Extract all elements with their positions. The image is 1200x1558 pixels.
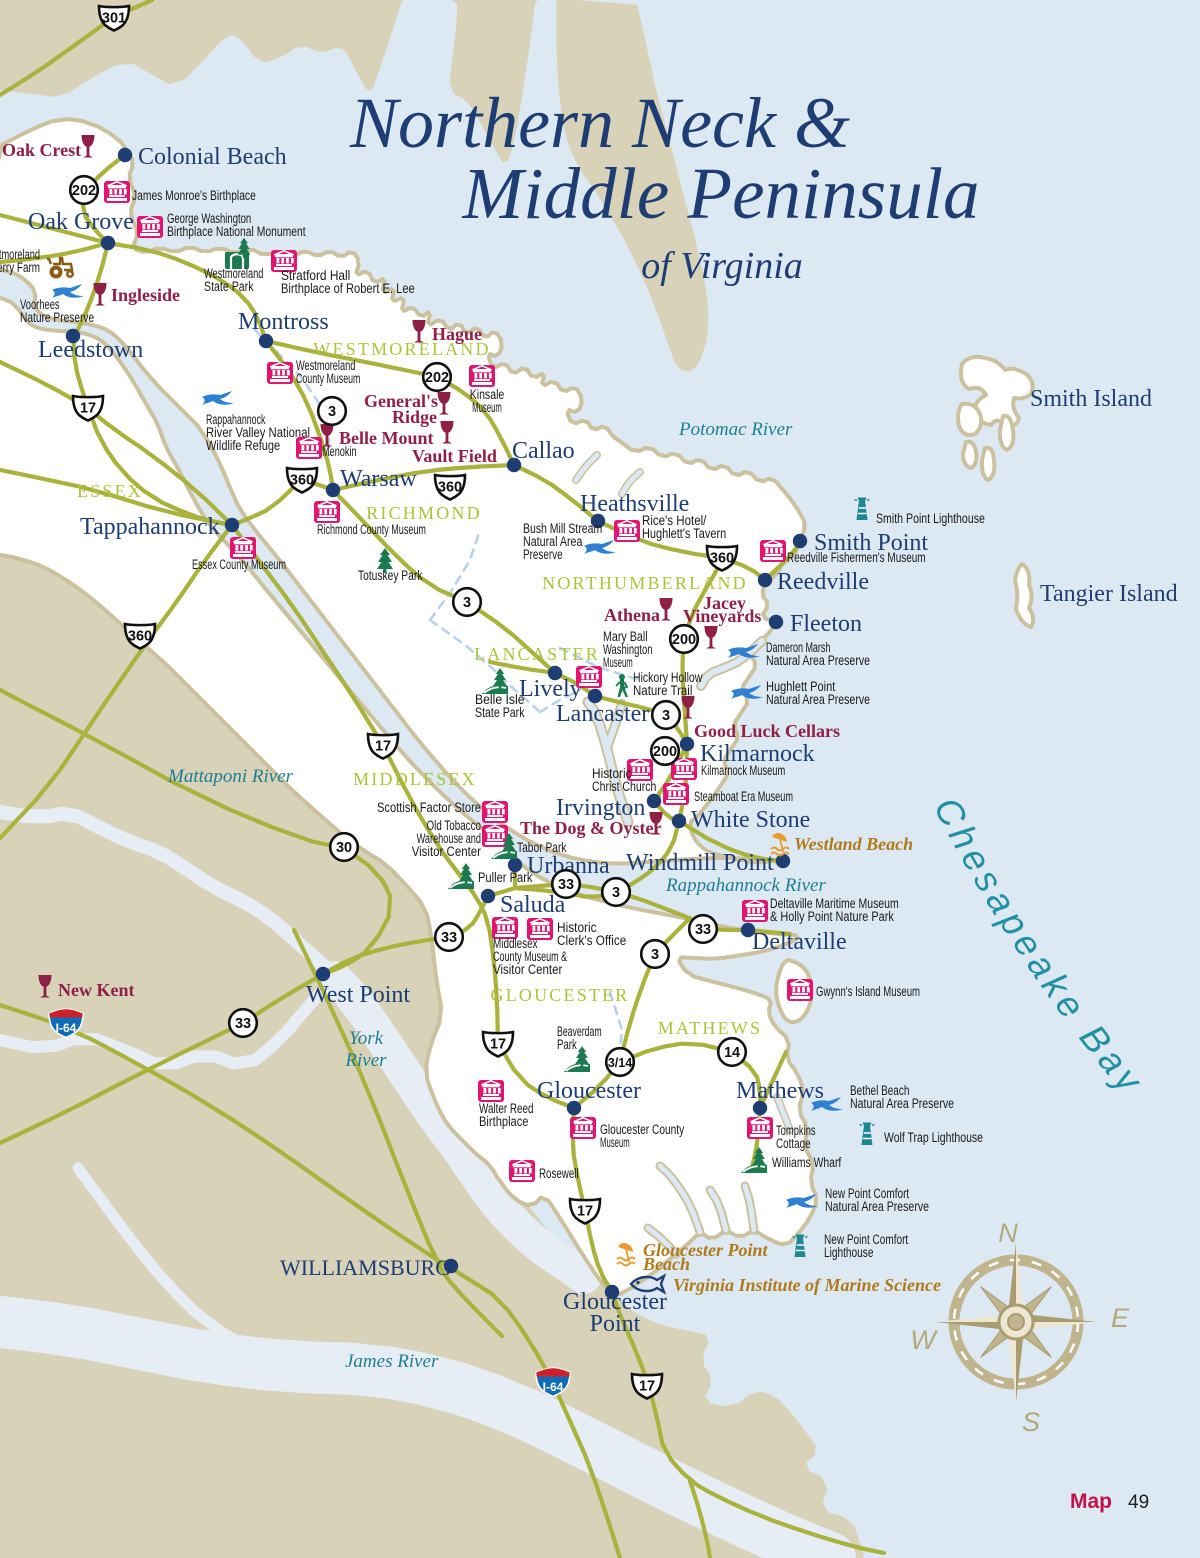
svg-text:Park: Park bbox=[557, 1037, 577, 1052]
svg-text:Tabor Park: Tabor Park bbox=[517, 840, 567, 855]
svg-text:Rosewell: Rosewell bbox=[539, 1166, 579, 1181]
svg-text:Birthplace: Birthplace bbox=[479, 1114, 529, 1129]
svg-text:Lively: Lively bbox=[519, 676, 582, 702]
svg-text:Lancaster: Lancaster bbox=[556, 701, 649, 727]
svg-text:ESSEX: ESSEX bbox=[77, 481, 143, 501]
svg-text:West Point: West Point bbox=[306, 982, 410, 1008]
svg-text:Kilmarnock Museum: Kilmarnock Museum bbox=[701, 763, 785, 778]
svg-text:Visitor Center: Visitor Center bbox=[493, 962, 563, 977]
svg-text:Potomac River: Potomac River bbox=[678, 419, 793, 440]
svg-text:RICHMOND: RICHMOND bbox=[366, 503, 482, 523]
svg-text:Natural Area Preserve: Natural Area Preserve bbox=[825, 1199, 929, 1214]
svg-text:E: E bbox=[1111, 1303, 1130, 1333]
svg-text:NORTHUMBERLAND: NORTHUMBERLAND bbox=[542, 573, 748, 593]
svg-text:Map: Map bbox=[1070, 1490, 1112, 1513]
svg-text:The Dog & Oyster: The Dog & Oyster bbox=[520, 818, 661, 838]
svg-text:New Kent: New Kent bbox=[58, 980, 134, 1000]
svg-text:Reedville Fishermen's Museum: Reedville Fishermen's Museum bbox=[787, 550, 926, 565]
svg-text:3/14: 3/14 bbox=[608, 1056, 632, 1070]
svg-text:Totuskey Park: Totuskey Park bbox=[358, 568, 423, 583]
svg-text:Montross: Montross bbox=[238, 309, 329, 335]
svg-text:Good Luck Cellars: Good Luck Cellars bbox=[694, 721, 840, 741]
svg-text:Museum: Museum bbox=[600, 1135, 630, 1150]
svg-text:& Holly Point Nature Park: & Holly Point Nature Park bbox=[770, 909, 894, 924]
svg-text:of Virginia: of Virginia bbox=[641, 245, 803, 287]
svg-text:Leedstown: Leedstown bbox=[38, 337, 143, 363]
svg-text:Natural Area Preserve: Natural Area Preserve bbox=[766, 653, 870, 668]
svg-text:N: N bbox=[998, 1218, 1018, 1248]
svg-text:Hughlett's Tavern: Hughlett's Tavern bbox=[642, 526, 726, 541]
svg-text:Fleeton: Fleeton bbox=[790, 611, 862, 637]
svg-text:Middle Peninsula: Middle Peninsula bbox=[462, 153, 980, 234]
svg-text:49: 49 bbox=[1128, 1492, 1149, 1513]
svg-text:GLOUCESTER: GLOUCESTER bbox=[491, 985, 630, 1005]
svg-text:360: 360 bbox=[710, 551, 734, 567]
svg-text:Ridge: Ridge bbox=[392, 407, 437, 427]
svg-text:Birthplace of Robert E. Lee: Birthplace of Robert E. Lee bbox=[281, 281, 415, 296]
svg-text:Oak Grove: Oak Grove bbox=[28, 209, 134, 235]
svg-text:Essex County Museum: Essex County Museum bbox=[192, 557, 286, 572]
svg-text:MATHEWS: MATHEWS bbox=[658, 1018, 762, 1038]
svg-text:Westland Beach: Westland Beach bbox=[794, 834, 913, 854]
svg-text:33: 33 bbox=[441, 930, 457, 946]
svg-text:3: 3 bbox=[328, 404, 336, 420]
svg-text:33: 33 bbox=[235, 1016, 251, 1032]
svg-text:Northern Neck &: Northern Neck & bbox=[349, 83, 850, 163]
svg-text:Athena: Athena bbox=[604, 605, 660, 625]
svg-text:W: W bbox=[910, 1325, 938, 1355]
svg-text:202: 202 bbox=[72, 183, 96, 199]
svg-text:360: 360 bbox=[128, 629, 152, 645]
svg-text:30: 30 bbox=[336, 840, 352, 856]
svg-text:Callao: Callao bbox=[512, 438, 575, 464]
svg-text:Reedville: Reedville bbox=[777, 569, 869, 595]
svg-text:3: 3 bbox=[612, 885, 620, 901]
svg-text:Museum: Museum bbox=[472, 400, 502, 415]
svg-text:200: 200 bbox=[653, 744, 677, 760]
svg-text:Deltaville: Deltaville bbox=[752, 929, 847, 955]
svg-text:Steamboat Era Museum: Steamboat Era Museum bbox=[694, 789, 793, 804]
svg-text:17: 17 bbox=[490, 1037, 506, 1053]
svg-text:WILLIAMSBURG: WILLIAMSBURG bbox=[280, 1255, 451, 1280]
svg-text:River: River bbox=[344, 1050, 387, 1071]
svg-text:17: 17 bbox=[80, 401, 96, 417]
svg-text:MIDDLESEX: MIDDLESEX bbox=[353, 769, 477, 789]
svg-text:James River: James River bbox=[345, 1351, 439, 1372]
svg-text:Vault Field: Vault Field bbox=[412, 446, 497, 466]
svg-text:Hague: Hague bbox=[432, 324, 482, 344]
svg-text:Smith Island: Smith Island bbox=[1030, 386, 1152, 412]
svg-text:Point: Point bbox=[590, 1311, 641, 1337]
svg-text:Birthplace National Monument: Birthplace National Monument bbox=[167, 224, 306, 239]
svg-text:Williams Wharf: Williams Wharf bbox=[772, 1155, 841, 1170]
svg-text:Berry Farm: Berry Farm bbox=[0, 260, 40, 275]
svg-text:17: 17 bbox=[375, 739, 391, 755]
svg-text:Windmill Point: Windmill Point bbox=[626, 850, 774, 876]
svg-text:Nature Preserve: Nature Preserve bbox=[20, 310, 94, 325]
svg-text:Mathews: Mathews bbox=[736, 1078, 824, 1104]
svg-text:33: 33 bbox=[558, 877, 574, 893]
svg-text:3: 3 bbox=[662, 708, 670, 724]
svg-text:Ingleside: Ingleside bbox=[111, 285, 180, 305]
svg-text:York: York bbox=[349, 1028, 384, 1049]
svg-text:Christ Church: Christ Church bbox=[592, 779, 656, 794]
svg-text:33: 33 bbox=[695, 922, 711, 938]
svg-text:Wolf Trap Lighthouse: Wolf Trap Lighthouse bbox=[884, 1130, 983, 1145]
svg-text:Richmond County Museum: Richmond County Museum bbox=[317, 522, 426, 537]
svg-text:202: 202 bbox=[425, 370, 449, 386]
svg-text:3: 3 bbox=[651, 947, 659, 963]
svg-text:200: 200 bbox=[672, 632, 696, 648]
svg-text:17: 17 bbox=[577, 1204, 593, 1220]
svg-text:14: 14 bbox=[724, 1045, 740, 1061]
svg-text:Beach: Beach bbox=[642, 1254, 690, 1274]
svg-text:Gwynn's Island Museum: Gwynn's Island Museum bbox=[816, 984, 920, 999]
svg-text:Lighthouse: Lighthouse bbox=[824, 1245, 874, 1260]
svg-text:Gloucester: Gloucester bbox=[537, 1078, 641, 1104]
svg-text:James Monroe's Birthplace: James Monroe's Birthplace bbox=[132, 188, 256, 203]
svg-text:360: 360 bbox=[438, 480, 462, 496]
svg-text:Vineyards: Vineyards bbox=[683, 606, 761, 626]
svg-text:Scottish Factor Store: Scottish Factor Store bbox=[377, 800, 481, 815]
svg-text:Tangier Island: Tangier Island bbox=[1040, 581, 1178, 607]
svg-text:Mattaponi River: Mattaponi River bbox=[167, 766, 294, 787]
svg-text:17: 17 bbox=[639, 1379, 655, 1395]
svg-text:Virginia Institute of Marine S: Virginia Institute of Marine Science bbox=[673, 1275, 941, 1295]
svg-text:3: 3 bbox=[463, 595, 471, 611]
svg-text:Cottage: Cottage bbox=[776, 1136, 811, 1151]
svg-text:Smith Point Lighthouse: Smith Point Lighthouse bbox=[876, 511, 985, 526]
svg-text:301: 301 bbox=[102, 11, 126, 27]
svg-text:360: 360 bbox=[290, 473, 314, 489]
svg-text:Puller Park: Puller Park bbox=[478, 870, 533, 885]
svg-text:White Stone: White Stone bbox=[691, 807, 810, 833]
svg-text:Tappahannock: Tappahannock bbox=[80, 514, 220, 540]
svg-text:Natural Area Preserve: Natural Area Preserve bbox=[766, 692, 870, 707]
svg-text:Colonial Beach: Colonial Beach bbox=[138, 144, 287, 170]
svg-text:Rappahannock River: Rappahannock River bbox=[665, 875, 826, 896]
svg-text:Museum: Museum bbox=[603, 655, 633, 670]
svg-text:Clerk's Office: Clerk's Office bbox=[557, 933, 626, 948]
svg-text:State Park: State Park bbox=[204, 279, 254, 294]
svg-text:LANCASTER: LANCASTER bbox=[474, 644, 600, 664]
svg-text:S: S bbox=[1022, 1407, 1040, 1437]
svg-text:Saluda: Saluda bbox=[500, 892, 566, 918]
svg-text:State Park: State Park bbox=[475, 705, 525, 720]
svg-text:Wildlife Refuge: Wildlife Refuge bbox=[206, 438, 280, 453]
svg-text:County Museum: County Museum bbox=[296, 371, 360, 386]
svg-text:Visitor Center: Visitor Center bbox=[412, 844, 482, 859]
svg-text:Preserve: Preserve bbox=[523, 547, 563, 562]
svg-text:Nature Trail: Nature Trail bbox=[633, 683, 692, 698]
svg-text:Natural Area Preserve: Natural Area Preserve bbox=[850, 1096, 954, 1111]
svg-text:Menokin: Menokin bbox=[322, 444, 357, 459]
svg-text:Warsaw: Warsaw bbox=[340, 466, 417, 492]
svg-text:Oak Crest: Oak Crest bbox=[2, 140, 81, 160]
